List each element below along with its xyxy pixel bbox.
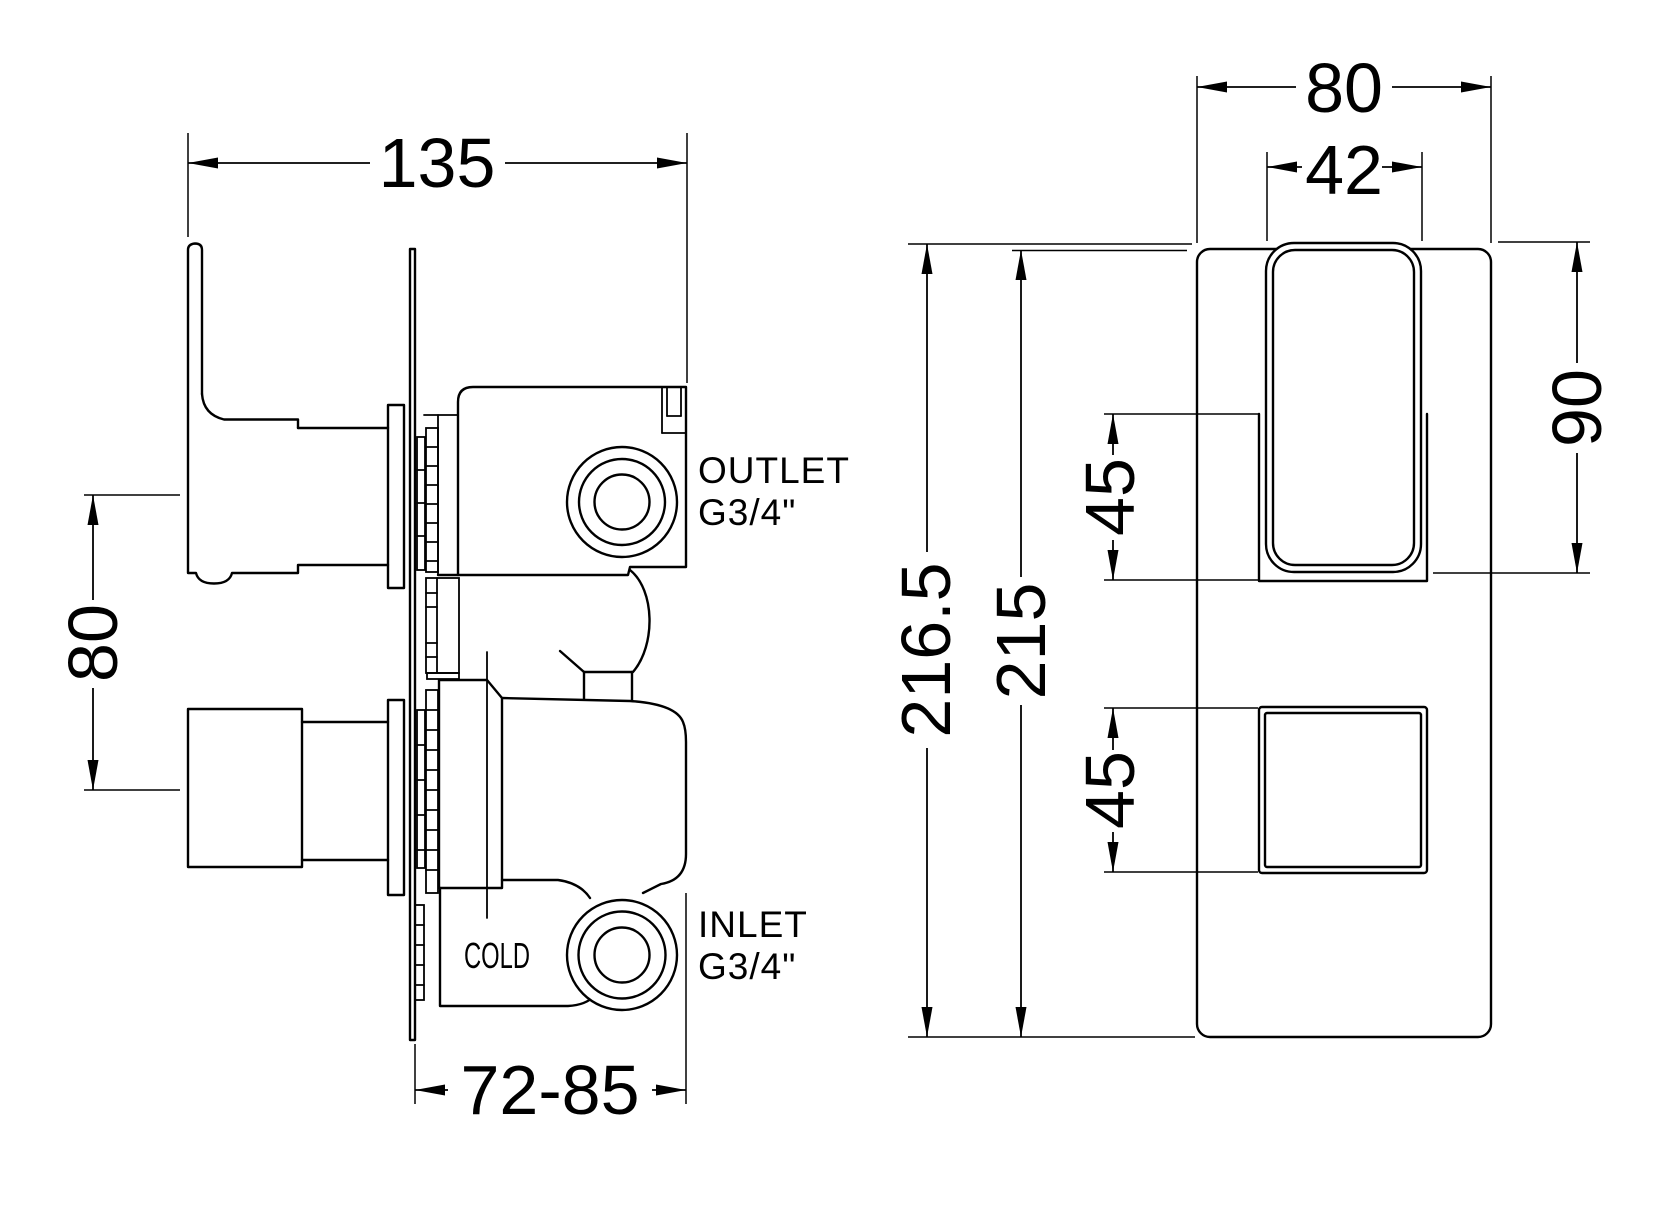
dim-90-value: 90 [1538,369,1616,447]
technical-drawing-page: COLD OUTLET G3/4" INLET G3/4" 135 80 [0,0,1653,1211]
shower-valve-dimension-drawing: COLD OUTLET G3/4" INLET G3/4" 135 80 [0,0,1653,1211]
front-lever-handle [1266,243,1421,572]
dim-135: 135 [188,124,687,383]
dim-215-value: 215 [982,583,1060,700]
front-knob-handle [1259,707,1427,873]
side-knob-handle [188,700,404,895]
cold-marking: COLD [464,935,530,976]
side-top-escutcheon [388,405,404,588]
inlet-label: INLET [698,904,808,945]
side-lever-handle [188,244,404,589]
outlet-port-outer [567,447,677,557]
inlet-port-outer [567,900,677,1010]
dim-80-spacing-value: 80 [54,604,132,682]
dim-80-plate-value: 80 [1305,49,1383,127]
port-labels: OUTLET G3/4" INLET G3/4" [698,450,850,987]
dim-45-lower-value: 45 [1071,751,1149,829]
dim-45-upper-value: 45 [1071,458,1149,536]
dim-72-85-value: 72-85 [460,1051,639,1129]
dim-135-value: 135 [379,124,496,202]
inlet-size-label: G3/4" [698,946,796,987]
outlet-label: OUTLET [698,450,850,491]
side-diverter-sleeve [426,578,459,679]
front-view: 80 42 216.5 215 [887,49,1616,1037]
side-lower-cartridge [415,690,438,1000]
side-bottom-escutcheon [388,700,404,895]
side-top-cartridge [417,415,458,575]
dim-42-value: 42 [1305,131,1383,209]
side-outlet-block [438,387,686,575]
side-body-neck [560,570,650,700]
side-lower-cartridge-cone [439,680,502,888]
outlet-size-label: G3/4" [698,492,796,533]
dim-80-spacing: 80 [54,495,180,790]
dim-42: 42 [1267,131,1422,241]
dim-216-5-value: 216.5 [887,562,965,737]
dim-215: 215 [982,250,1187,1037]
side-view: COLD OUTLET G3/4" INLET G3/4" 135 80 [54,124,850,1129]
